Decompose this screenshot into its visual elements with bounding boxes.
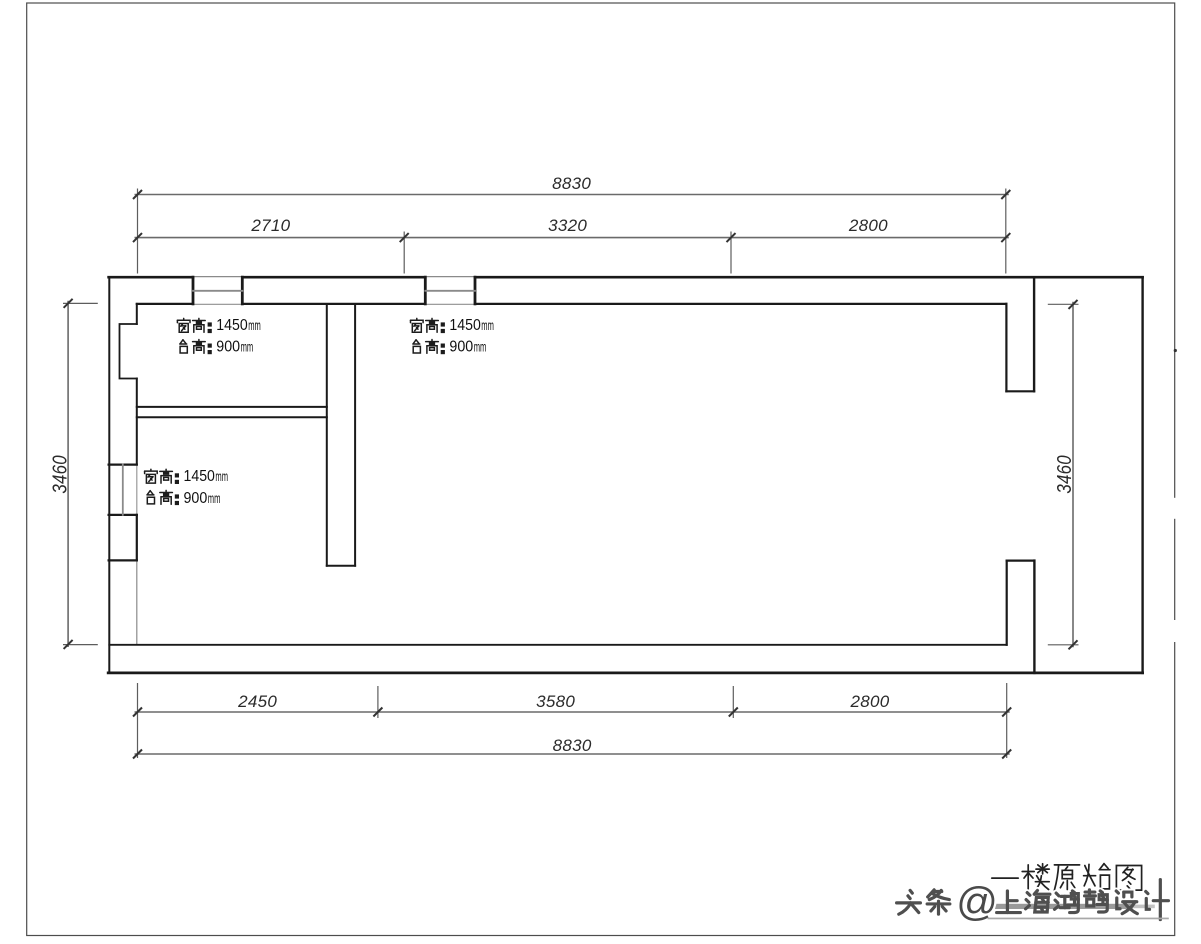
svg-text:2710: 2710 — [250, 216, 290, 235]
svg-text:3580: 3580 — [536, 692, 575, 711]
svg-text:mm: mm — [241, 339, 254, 355]
svg-text:mm: mm — [248, 317, 261, 333]
svg-text:2450: 2450 — [237, 692, 277, 711]
svg-text:3320: 3320 — [548, 216, 587, 235]
svg-text:3460: 3460 — [1054, 455, 1076, 494]
svg-text:8830: 8830 — [552, 174, 591, 193]
svg-text:mm: mm — [481, 317, 494, 333]
svg-text:mm: mm — [208, 490, 221, 506]
svg-text:900: 900 — [216, 339, 240, 356]
svg-text:2800: 2800 — [848, 216, 888, 235]
svg-text:3460: 3460 — [50, 455, 72, 494]
svg-text:1450: 1450 — [449, 317, 481, 334]
svg-text:900: 900 — [449, 339, 473, 356]
svg-text:1450: 1450 — [184, 468, 216, 485]
svg-text:8830: 8830 — [553, 736, 592, 755]
svg-text:mm: mm — [215, 468, 228, 484]
svg-text:900: 900 — [184, 490, 208, 507]
svg-text:mm: mm — [474, 339, 487, 355]
svg-text:2800: 2800 — [849, 692, 889, 711]
svg-text:1450: 1450 — [216, 317, 248, 334]
